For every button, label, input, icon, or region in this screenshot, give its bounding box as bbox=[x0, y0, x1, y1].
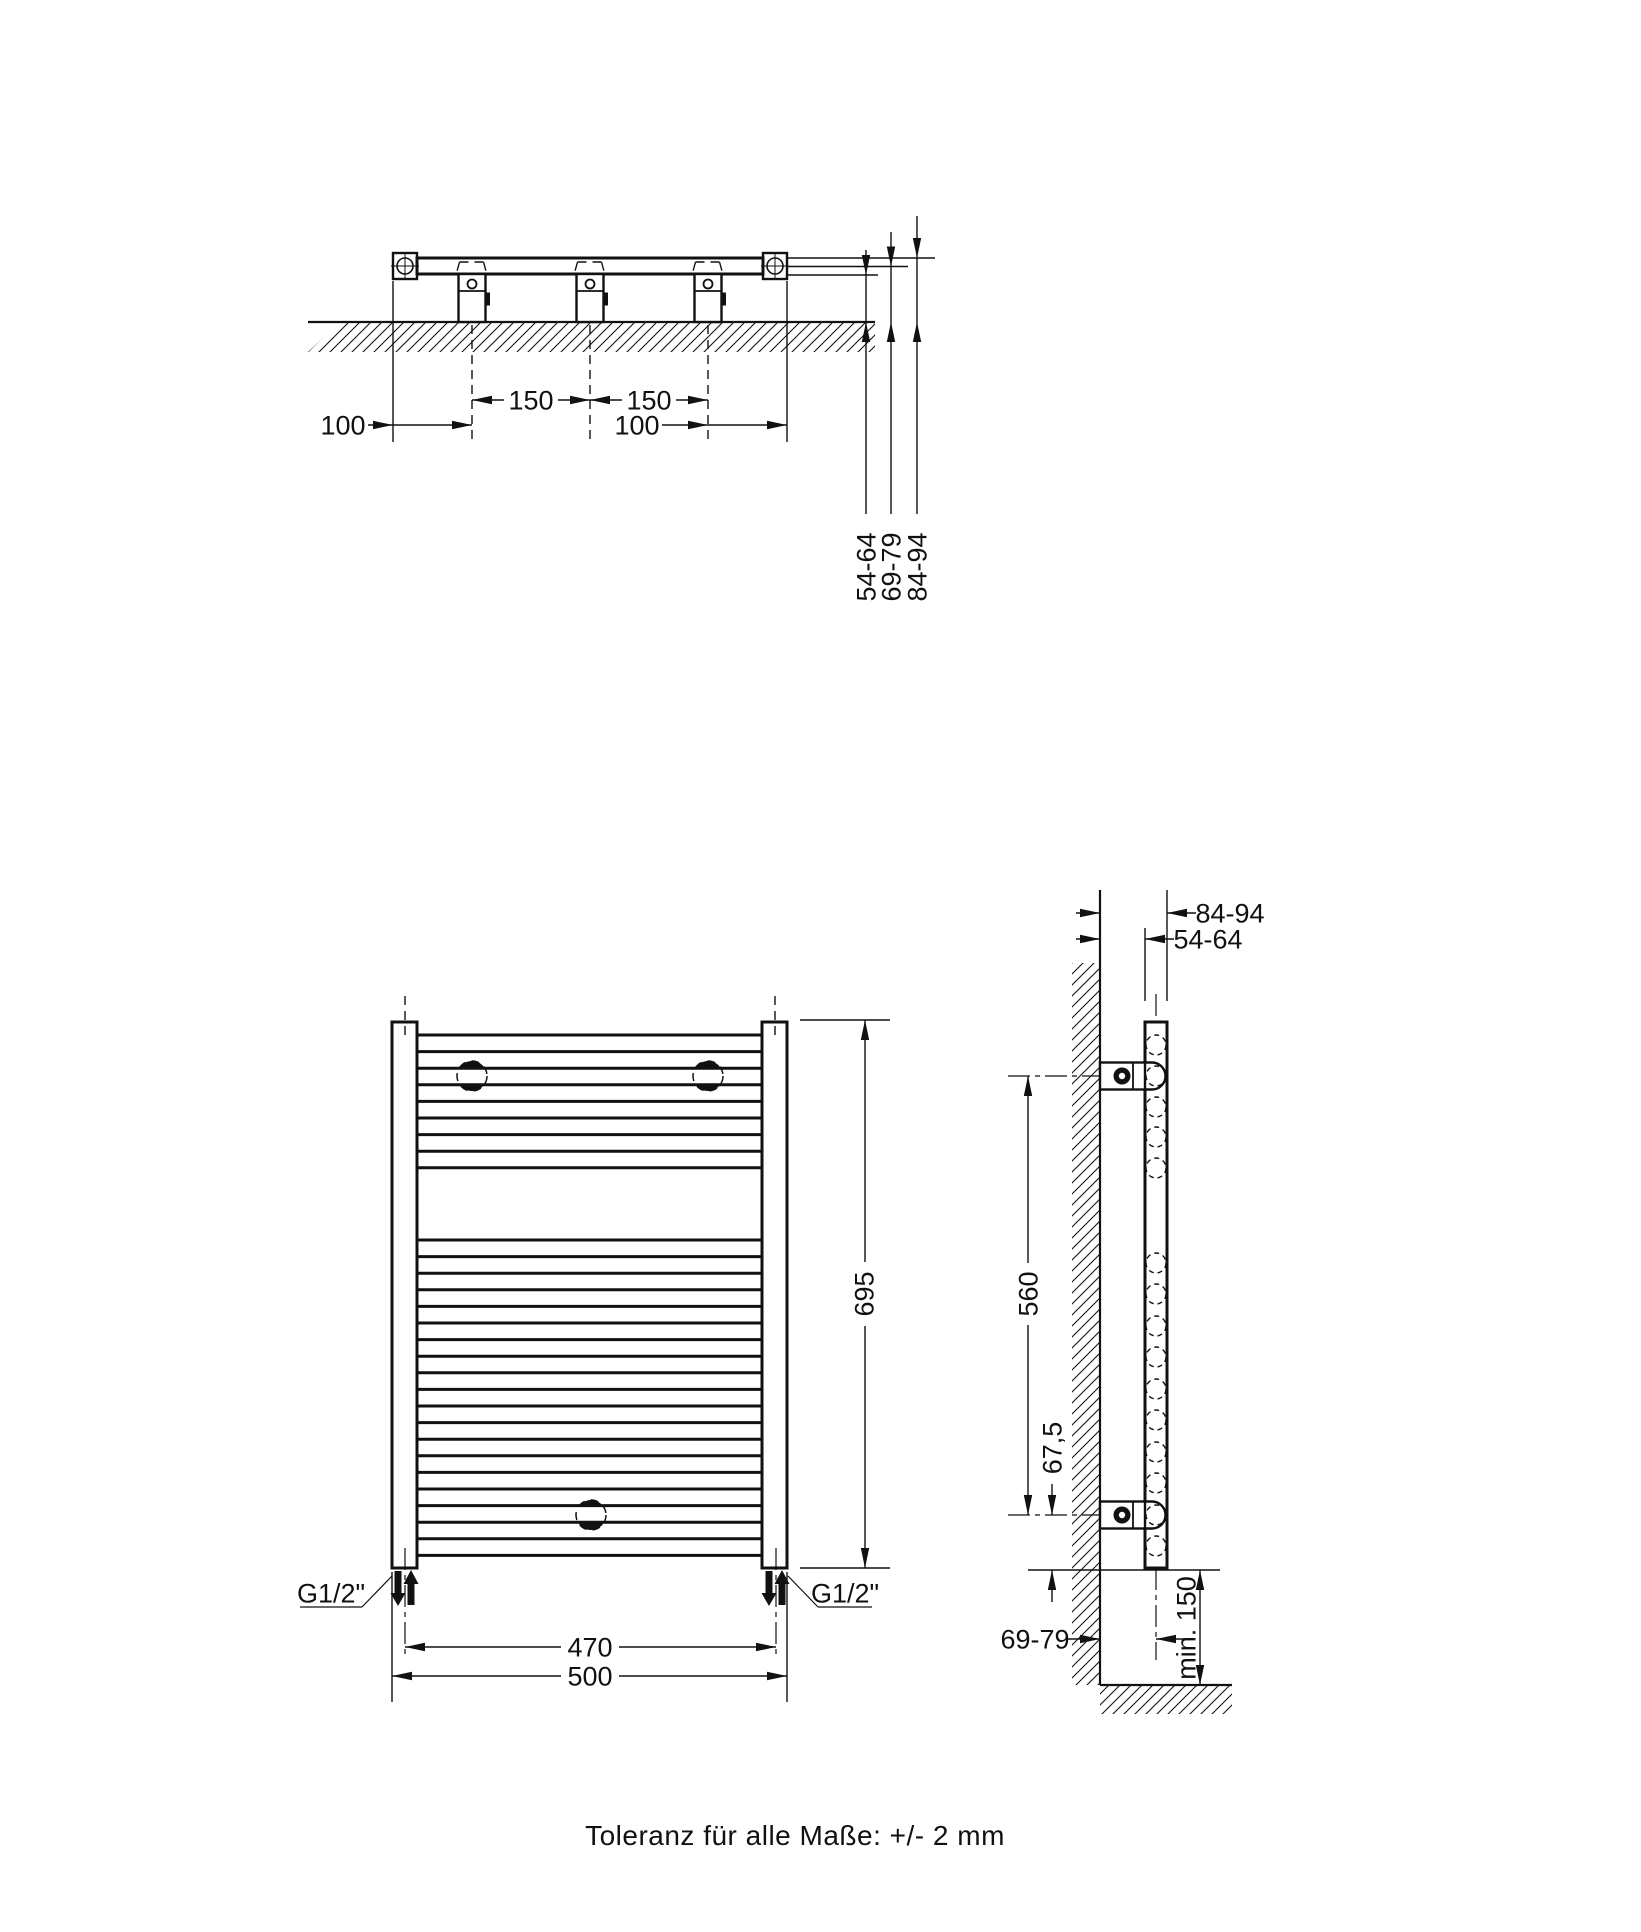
flow-arrow-down bbox=[391, 1593, 406, 1606]
bracket bbox=[577, 274, 604, 322]
side-view: 84-9454-6456067,569-79min. 150 bbox=[1000, 890, 1264, 1714]
dimension-arrow bbox=[861, 1020, 869, 1040]
dimension-arrow bbox=[913, 238, 921, 258]
dim-150: 150 bbox=[508, 386, 553, 416]
dimension-arrow bbox=[590, 396, 610, 404]
collector-side bbox=[1145, 1022, 1167, 1568]
dimension-arrow bbox=[405, 1643, 425, 1651]
dim-69-79: 69-79 bbox=[1000, 1625, 1069, 1655]
bracket bbox=[695, 274, 722, 322]
dimension-arrow bbox=[1080, 909, 1100, 917]
dimension-arrow bbox=[756, 1643, 776, 1651]
dim-67-5: 67,5 bbox=[1038, 1422, 1068, 1475]
wall-hatch bbox=[1072, 963, 1100, 1685]
rung-ends bbox=[1146, 1035, 1166, 1556]
dim-54-64: 54-64 bbox=[1173, 925, 1242, 955]
dim-84-94: 84-94 bbox=[903, 532, 933, 601]
dimension-arrow bbox=[862, 255, 870, 275]
dimension-arrow bbox=[913, 322, 921, 342]
dimension-arrow bbox=[1145, 935, 1165, 943]
dimension-arrow bbox=[688, 421, 708, 429]
rung-end bbox=[1146, 1379, 1166, 1399]
dim-min-150: min. 150 bbox=[1172, 1576, 1202, 1680]
flow-arrow-down bbox=[762, 1593, 777, 1606]
rung-group-upper bbox=[417, 1035, 762, 1168]
rung-end bbox=[1146, 1473, 1166, 1493]
tolerance-note: Toleranz für alle Maße: +/- 2 mm bbox=[460, 1820, 1130, 1852]
rung-end bbox=[1146, 1442, 1166, 1462]
rung-end bbox=[1146, 1284, 1166, 1304]
dim-500: 500 bbox=[567, 1662, 612, 1692]
dimension-arrow bbox=[1024, 1495, 1032, 1515]
dimension-arrow bbox=[1024, 1076, 1032, 1096]
front-view: 695G1/2"G1/2"470500 bbox=[297, 996, 890, 1702]
rung-end bbox=[1146, 1410, 1166, 1430]
rung-end bbox=[1146, 1097, 1166, 1117]
flow-arrow-up bbox=[408, 1584, 415, 1605]
drawing-svg: 54-6469-7984-94150150100100695G1/2"G1/2"… bbox=[0, 0, 1641, 1932]
dimension-arrow bbox=[452, 421, 472, 429]
flow-arrow-down bbox=[766, 1571, 773, 1593]
dimension-arrow bbox=[861, 1548, 869, 1568]
rung-group-lower bbox=[417, 1240, 762, 1555]
bracket bbox=[459, 274, 486, 322]
rung-end bbox=[1146, 1253, 1166, 1273]
rung-end bbox=[1146, 1127, 1166, 1147]
flow-arrow-up bbox=[779, 1584, 786, 1605]
bracket-position bbox=[576, 1500, 606, 1530]
dimension-arrow bbox=[887, 322, 895, 342]
left-collector bbox=[392, 1022, 417, 1568]
dimension-arrow bbox=[767, 421, 787, 429]
dimension-arrow bbox=[570, 396, 590, 404]
dim-695: 695 bbox=[850, 1271, 880, 1316]
flow-arrow-down bbox=[395, 1571, 402, 1593]
bracket-position bbox=[693, 1061, 723, 1091]
dimension-arrow bbox=[887, 247, 895, 267]
flow-arrow-up bbox=[404, 1570, 419, 1584]
dimension-arrow bbox=[688, 396, 708, 404]
rung-end bbox=[1146, 1158, 1166, 1178]
thread-label: G1/2" bbox=[811, 1579, 879, 1609]
dimension-arrow bbox=[1048, 1570, 1056, 1590]
bracket-position bbox=[457, 1061, 487, 1091]
right-collector bbox=[762, 1022, 787, 1568]
dimension-arrow bbox=[767, 1672, 787, 1680]
dim-560: 560 bbox=[1014, 1271, 1044, 1316]
floor-hatch bbox=[1100, 1685, 1232, 1714]
radiator-installation-drawing: 54-6469-7984-94150150100100695G1/2"G1/2"… bbox=[0, 0, 1641, 1932]
dimension-arrow bbox=[1167, 909, 1187, 917]
rung-end bbox=[1146, 1347, 1166, 1367]
dimension-arrow bbox=[472, 396, 492, 404]
dim-100: 100 bbox=[614, 411, 659, 441]
dimension-arrow bbox=[1080, 935, 1100, 943]
rung-end bbox=[1146, 1035, 1166, 1055]
dim-100: 100 bbox=[320, 411, 365, 441]
dim-470: 470 bbox=[567, 1633, 612, 1663]
dimension-arrow bbox=[373, 421, 393, 429]
thread-label: G1/2" bbox=[297, 1579, 365, 1609]
rung-end bbox=[1146, 1536, 1166, 1556]
dimension-arrow bbox=[1048, 1495, 1056, 1515]
tube bbox=[417, 258, 763, 274]
rung-end bbox=[1146, 1316, 1166, 1336]
dimension-arrow bbox=[392, 1672, 412, 1680]
top-view: 54-6469-7984-94150150100100 bbox=[308, 216, 935, 602]
